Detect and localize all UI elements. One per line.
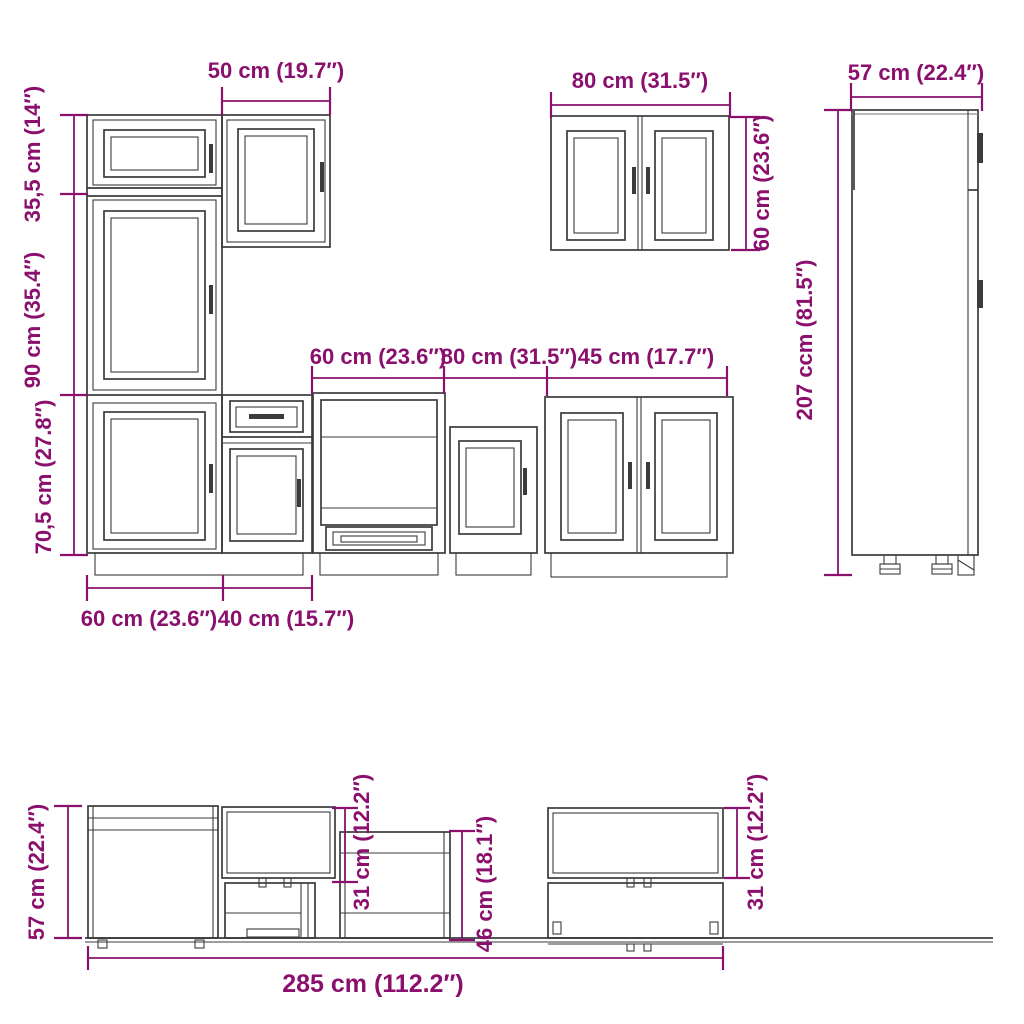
plinth bbox=[551, 553, 727, 577]
dim-label: 31 cm (12.2″) bbox=[349, 774, 374, 911]
handle bbox=[320, 162, 324, 192]
handle bbox=[646, 167, 650, 194]
dim-side-wall-right-depth: 31 cm (12.2″) bbox=[724, 774, 768, 911]
dim-label: 60 cm (23.6″) bbox=[81, 606, 218, 631]
adjustable-feet bbox=[880, 555, 974, 575]
wall-cabinet-side-left bbox=[222, 807, 335, 887]
handle bbox=[628, 462, 632, 489]
side-view bbox=[85, 806, 993, 951]
plinth bbox=[95, 553, 303, 575]
diagram-canvas: 50 cm (19.7″) 35,5 cm (14″) 90 cm (35.4″… bbox=[0, 0, 1024, 1024]
dim-label: 80 cm (31.5″) bbox=[441, 344, 578, 369]
plinth bbox=[320, 553, 438, 575]
base-cabinet-side-right bbox=[548, 883, 723, 951]
bracket bbox=[553, 922, 561, 934]
dim-tall207-depth: 57 cm (22.4″) bbox=[848, 60, 985, 111]
plinth bbox=[456, 553, 531, 575]
dimensions: 50 cm (19.7″) 35,5 cm (14″) 90 cm (35.4″… bbox=[20, 58, 984, 998]
bracket bbox=[710, 922, 718, 934]
foot bbox=[195, 940, 204, 948]
dim-wall80-height: 60 cm (23.6″) bbox=[731, 115, 774, 252]
kitchen-cabinet-dimension-diagram: 50 cm (19.7″) 35,5 cm (14″) 90 cm (35.4″… bbox=[0, 0, 1024, 1024]
drawer-handle bbox=[249, 414, 284, 419]
foot bbox=[627, 944, 634, 951]
wall-cabinet-80 bbox=[551, 116, 729, 250]
dim-label: 80 cm (31.5″) bbox=[572, 68, 709, 93]
foot bbox=[644, 944, 651, 951]
dim-label: 90 cm (35.4″) bbox=[20, 252, 45, 389]
dim-label: 50 cm (19.7″) bbox=[208, 58, 345, 83]
dim-wall80-width: 80 cm (31.5″) bbox=[551, 68, 730, 118]
dim-side-oven-height: 46 cm (18.1″) bbox=[449, 816, 497, 953]
handle bbox=[632, 167, 636, 194]
dim-tall-unit-sections: 35,5 cm (14″) 90 cm (35.4″) 70,5 cm (27.… bbox=[20, 86, 88, 555]
wall-cabinet-50 bbox=[222, 115, 330, 247]
wall-cabinet-side-right bbox=[548, 808, 723, 887]
handle bbox=[646, 462, 650, 489]
dim-wall50-width: 50 cm (19.7″) bbox=[208, 58, 345, 115]
dim-side-wall-left-depth: 31 cm (12.2″) bbox=[332, 774, 374, 911]
dim-label: 45 cm (17.7″) bbox=[578, 344, 715, 369]
handle bbox=[977, 133, 983, 163]
base-cabinet-side-small bbox=[225, 883, 315, 938]
oven-cabinet-60 bbox=[313, 393, 445, 575]
handle bbox=[209, 285, 213, 314]
handle bbox=[209, 464, 213, 493]
dim-tall207-height: 207 ccm (81.5″) bbox=[792, 110, 852, 575]
handle bbox=[297, 479, 301, 507]
tall-cabinet-207 bbox=[852, 110, 983, 575]
dim-total-width: 285 cm (112.2″) bbox=[88, 946, 723, 998]
handle bbox=[523, 468, 527, 495]
handle bbox=[209, 144, 213, 173]
double-base-cabinet-45 bbox=[545, 397, 733, 577]
dim-label: 207 ccm (81.5″) bbox=[792, 260, 817, 421]
dim-label: 70,5 cm (27.8″) bbox=[31, 400, 56, 555]
foot bbox=[98, 940, 107, 948]
dim-label: 57 cm (22.4″) bbox=[848, 60, 985, 85]
dim-label: 40 cm (15.7″) bbox=[218, 606, 355, 631]
tall-cabinet-60 bbox=[87, 115, 303, 575]
dim-label: 285 cm (112.2″) bbox=[282, 970, 464, 998]
dim-label: 46 cm (18.1″) bbox=[472, 816, 497, 953]
dim-label: 31 cm (12.2″) bbox=[743, 774, 768, 911]
dim-label: 35,5 cm (14″) bbox=[20, 86, 45, 223]
floor-line bbox=[85, 938, 993, 942]
base-cabinet-40 bbox=[222, 395, 312, 553]
sink-base-cabinet bbox=[450, 427, 537, 575]
dim-label: 60 cm (23.6″) bbox=[310, 344, 447, 369]
dim-label: 60 cm (23.6″) bbox=[749, 115, 774, 252]
handle bbox=[977, 280, 983, 308]
dim-bottom-left-widths: 60 cm (23.6″) 40 cm (15.7″) bbox=[81, 575, 355, 631]
base-unit-side bbox=[88, 806, 218, 948]
dim-label: 57 cm (22.4″) bbox=[24, 804, 49, 941]
dim-base-row-widths: 60 cm (23.6″) 80 cm (31.5″) 45 cm (17.7″… bbox=[310, 344, 727, 396]
dim-side-base-height: 57 cm (22.4″) bbox=[24, 804, 82, 941]
